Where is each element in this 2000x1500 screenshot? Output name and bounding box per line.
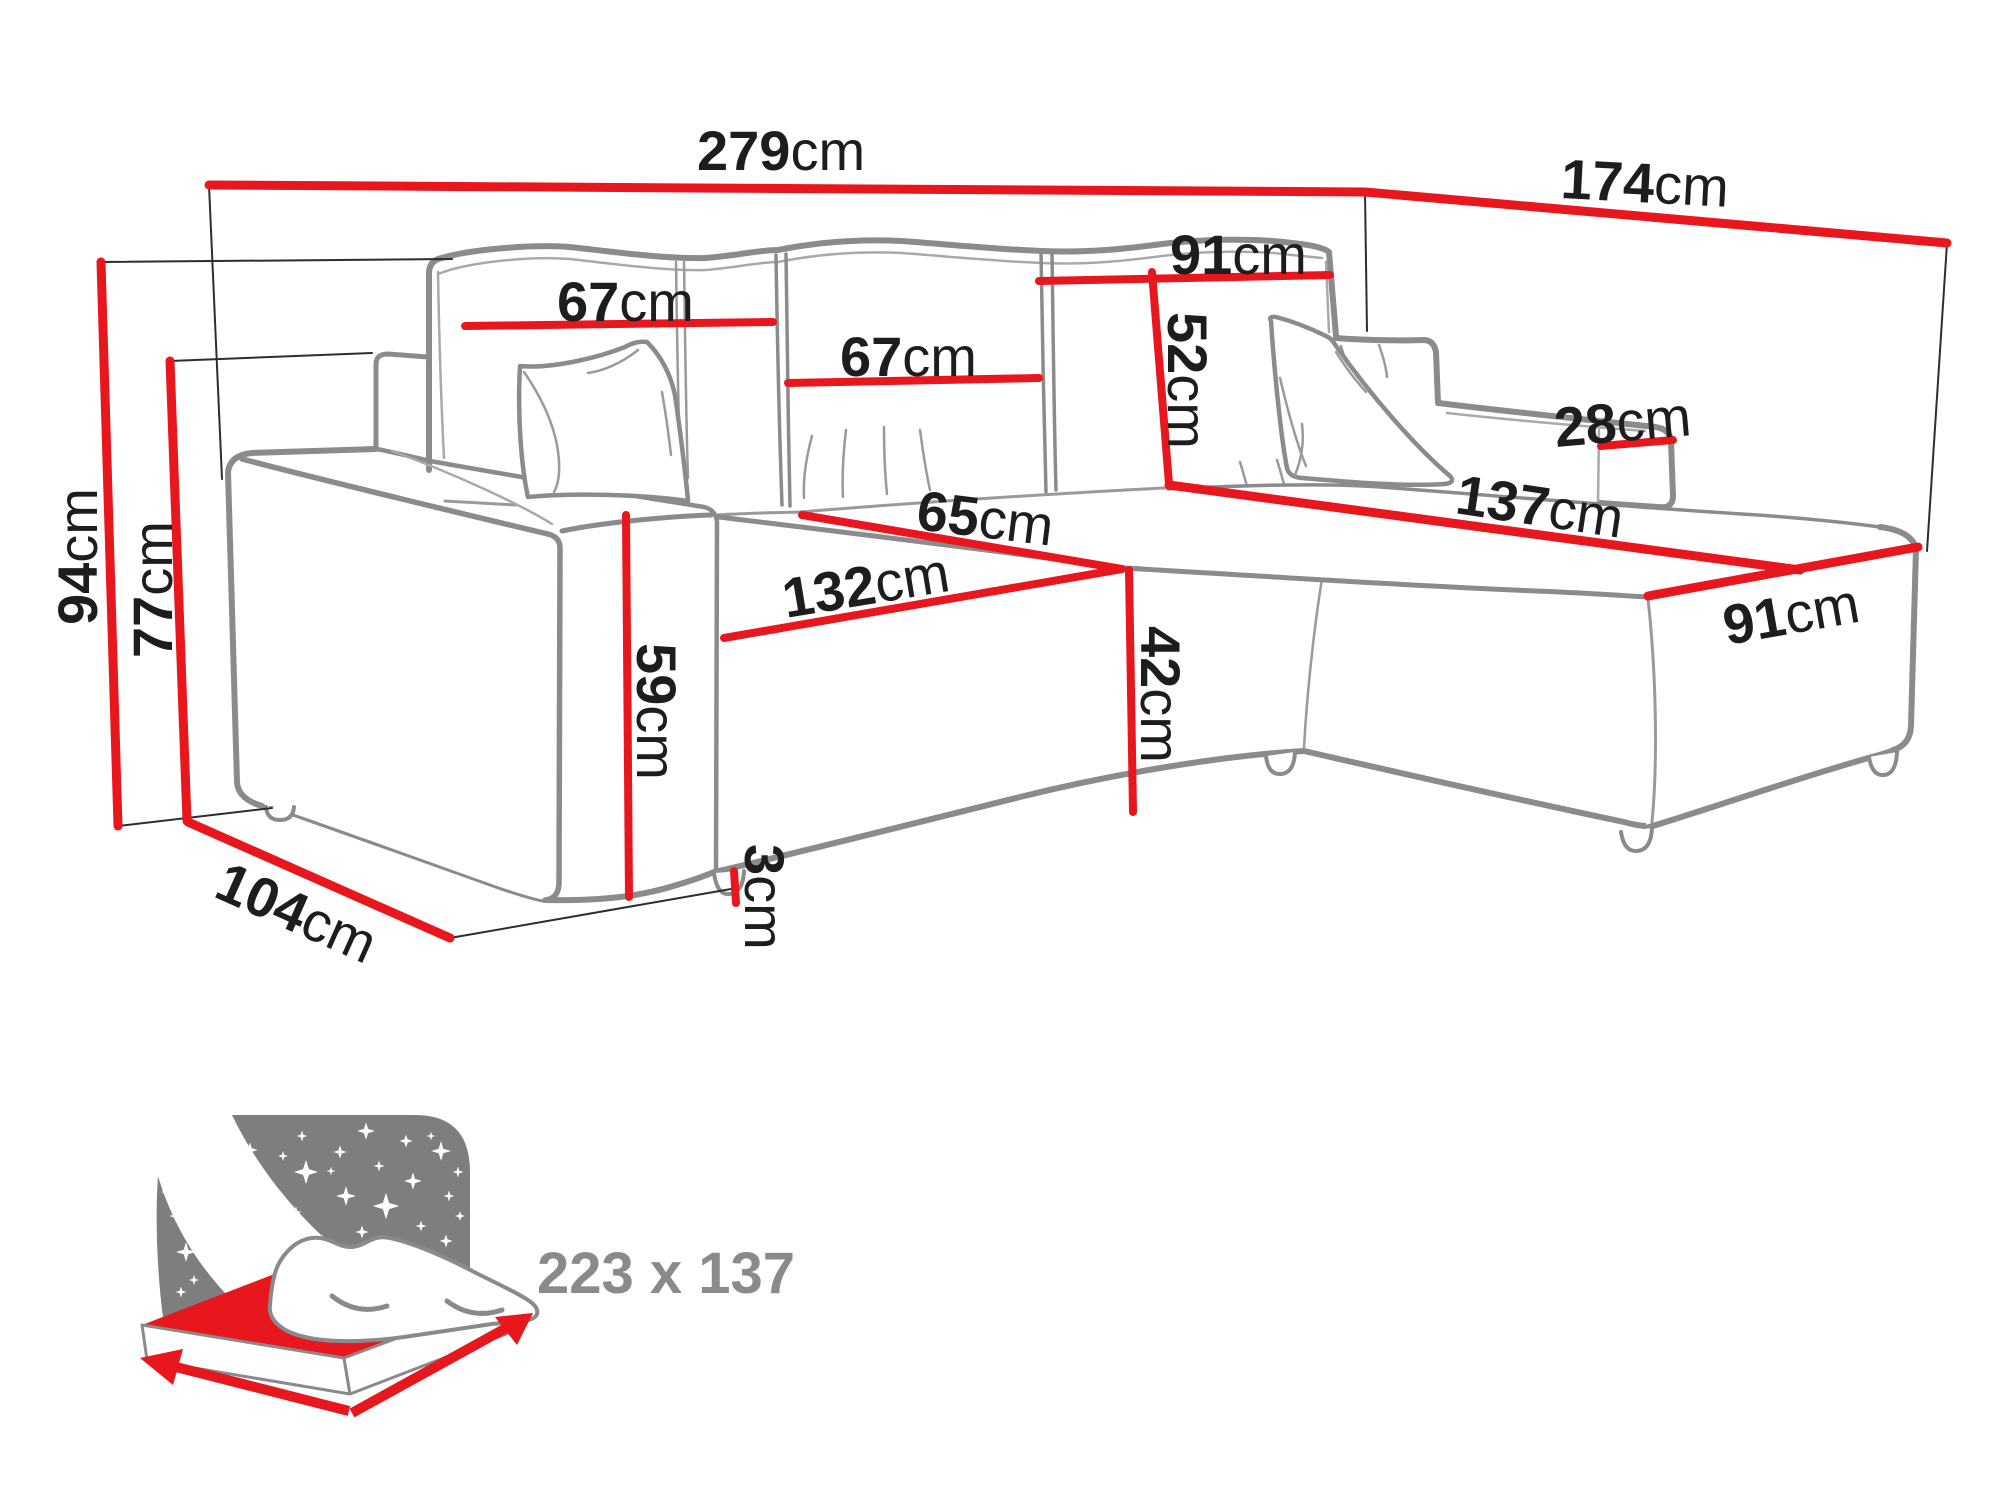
svg-text:28cm: 28cm [1552,384,1694,459]
svg-text:67cm: 67cm [557,270,694,333]
svg-text:52cm: 52cm [1156,312,1219,449]
svg-text:91cm: 91cm [1170,223,1307,286]
svg-text:94cm: 94cm [46,488,109,625]
svg-text:174cm: 174cm [1559,147,1730,219]
svg-text:67cm: 67cm [840,325,977,388]
svg-text:42cm: 42cm [1129,626,1192,763]
svg-text:279cm: 279cm [697,119,865,182]
svg-text:3cm: 3cm [733,844,796,950]
svg-text:77cm: 77cm [121,521,184,658]
svg-text:223 x 137: 223 x 137 [537,1241,795,1306]
svg-text:59cm: 59cm [625,643,688,780]
